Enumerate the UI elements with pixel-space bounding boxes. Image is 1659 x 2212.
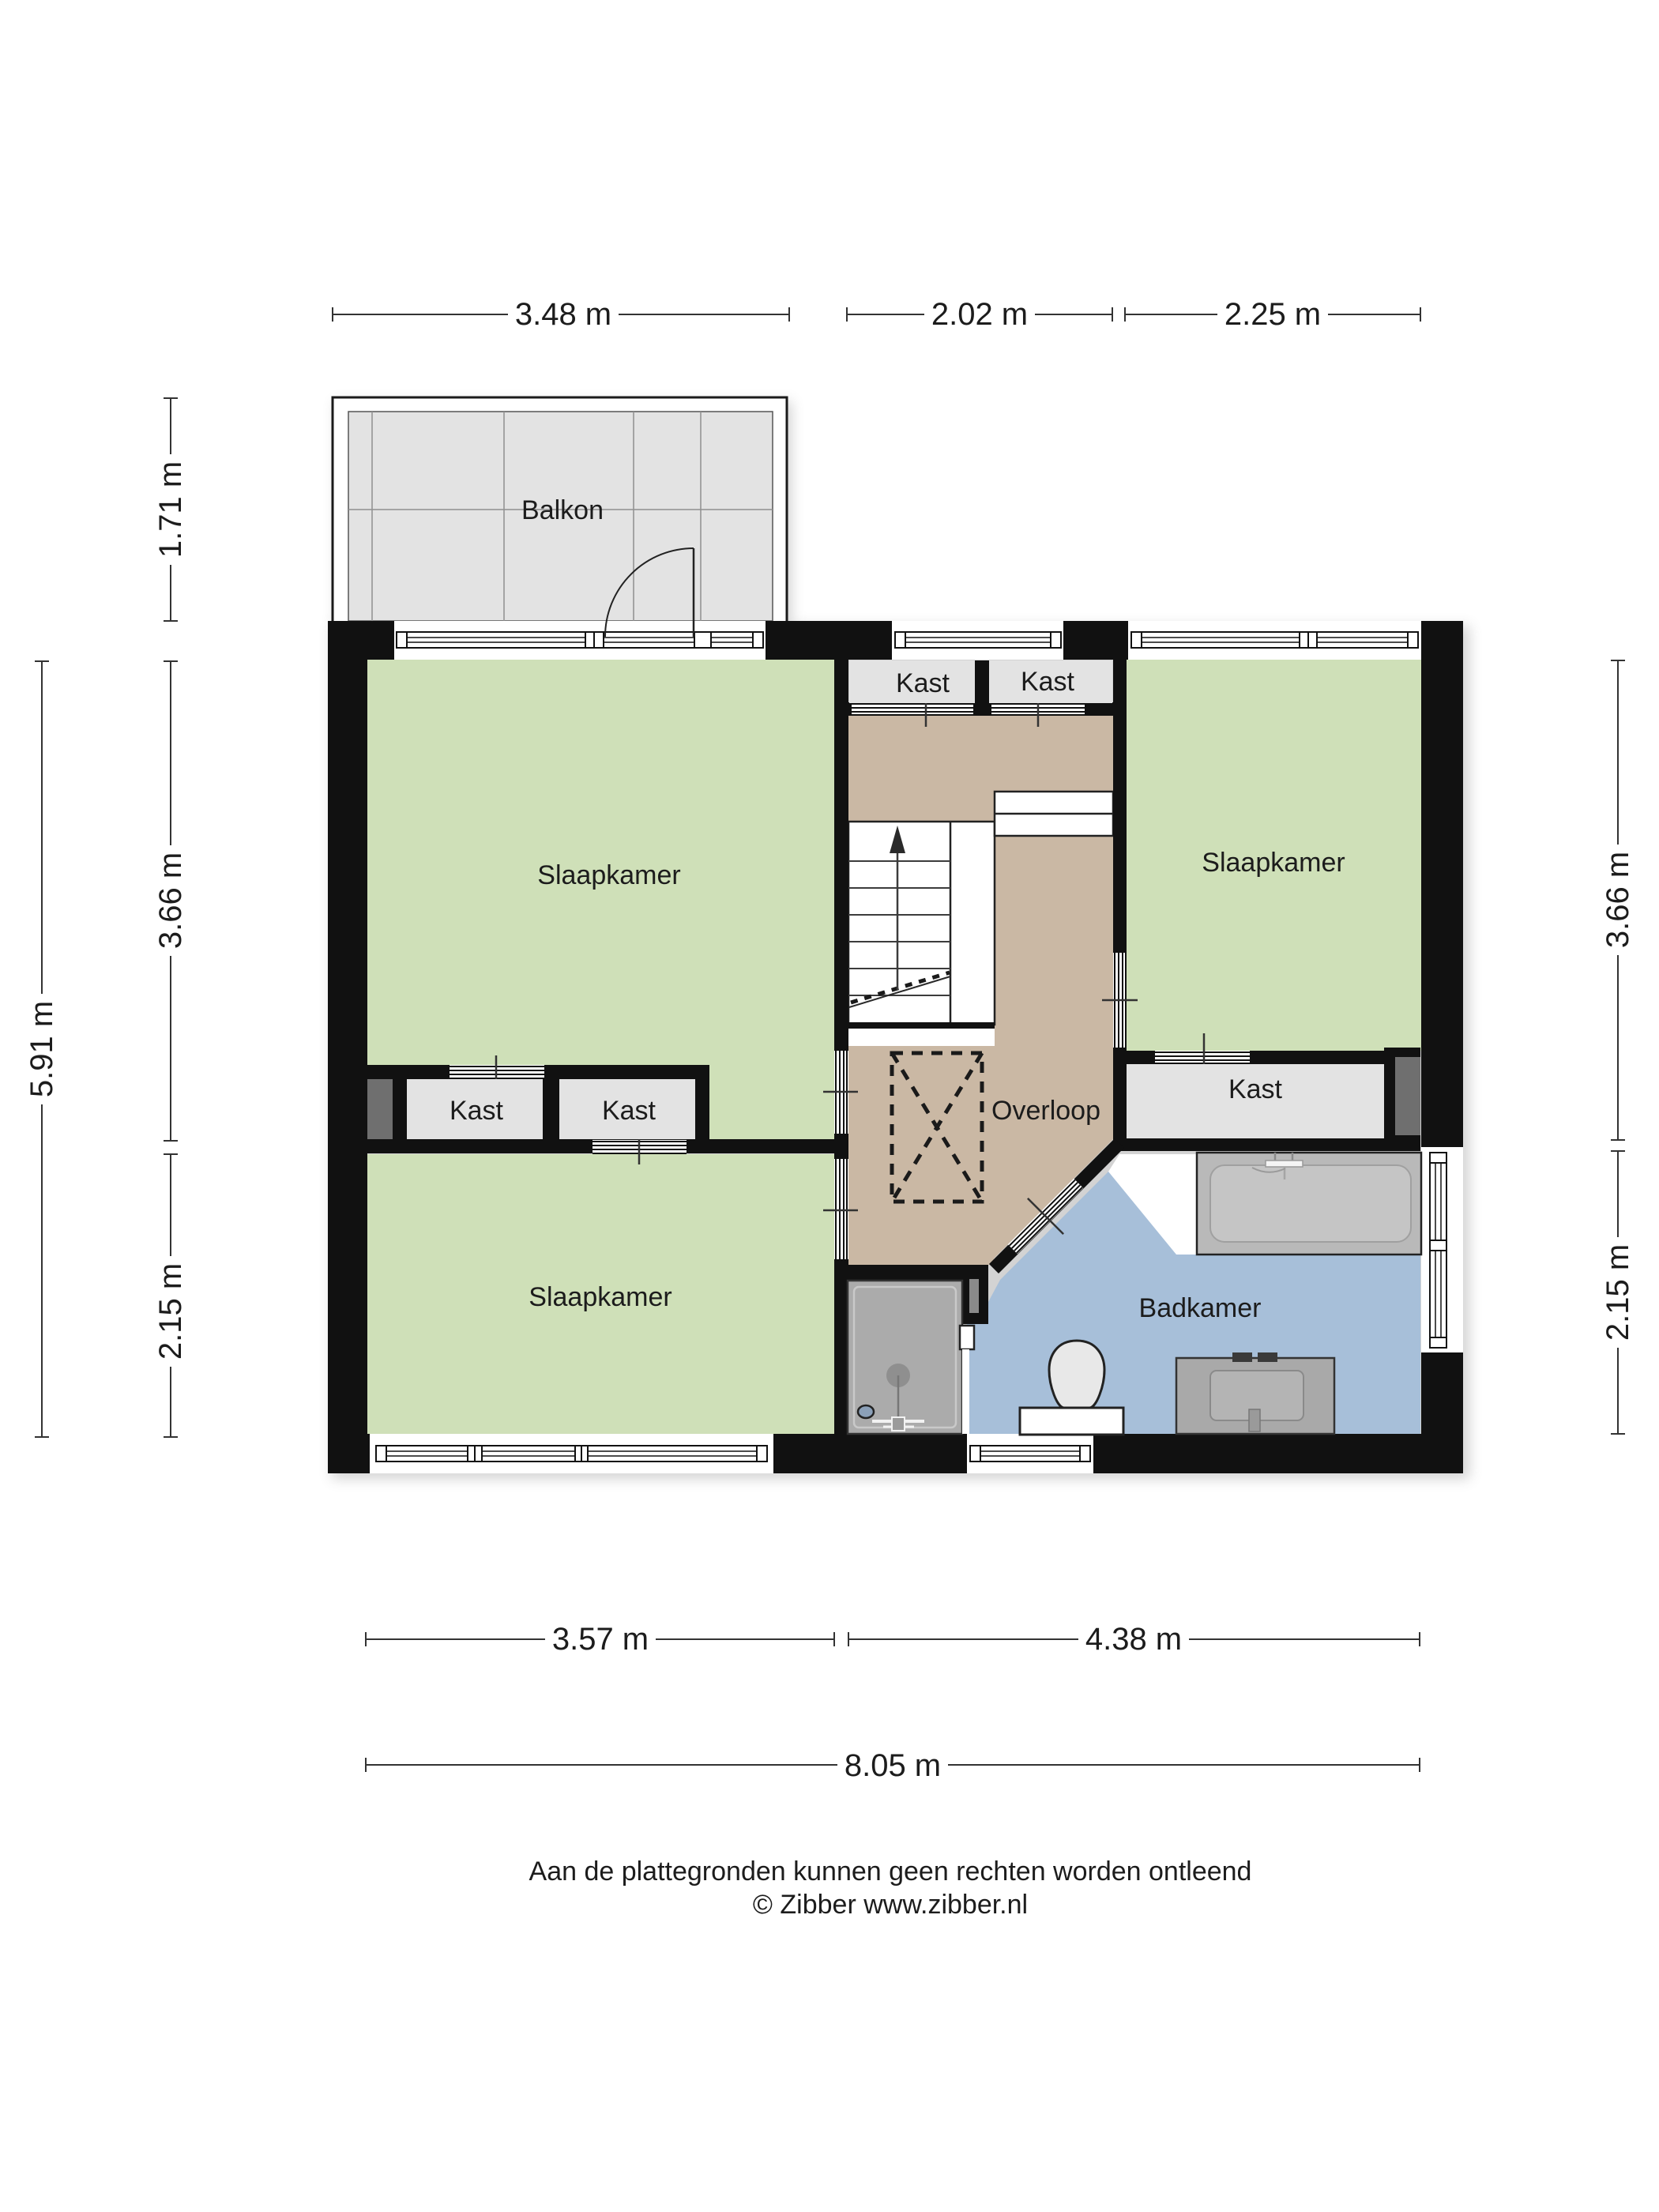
svg-text:1.71 m: 1.71 m [153, 461, 188, 558]
svg-text:Balkon: Balkon [521, 495, 604, 525]
svg-text:Overloop: Overloop [991, 1096, 1100, 1126]
svg-text:© Zibber www.zibber.nl: © Zibber www.zibber.nl [753, 1890, 1028, 1920]
svg-text:2.02 m: 2.02 m [931, 297, 1028, 332]
svg-text:2.15 m: 2.15 m [153, 1263, 188, 1360]
svg-text:8.05 m: 8.05 m [845, 1748, 941, 1783]
svg-text:Slaapkamer: Slaapkamer [529, 1282, 671, 1312]
svg-text:Kast: Kast [602, 1096, 656, 1126]
svg-text:Kast: Kast [450, 1096, 504, 1126]
svg-text:Slaapkamer: Slaapkamer [1202, 848, 1345, 878]
svg-text:2.25 m: 2.25 m [1224, 297, 1321, 332]
svg-text:4.38 m: 4.38 m [1085, 1622, 1182, 1657]
svg-text:3.48 m: 3.48 m [515, 297, 611, 332]
svg-text:Aan de plattegronden kunnen ge: Aan de plattegronden kunnen geen rechten… [529, 1856, 1252, 1887]
svg-text:3.66 m: 3.66 m [1601, 852, 1635, 948]
svg-text:Kast: Kast [896, 668, 950, 698]
svg-text:Badkamer: Badkamer [1139, 1293, 1262, 1323]
svg-text:3.57 m: 3.57 m [552, 1622, 649, 1657]
svg-text:Kast: Kast [1228, 1074, 1283, 1104]
svg-text:Kast: Kast [1021, 667, 1075, 697]
svg-text:3.66 m: 3.66 m [153, 852, 188, 949]
svg-text:2.15 m: 2.15 m [1601, 1244, 1635, 1341]
svg-text:5.91 m: 5.91 m [24, 1001, 59, 1097]
svg-text:Slaapkamer: Slaapkamer [537, 860, 680, 890]
